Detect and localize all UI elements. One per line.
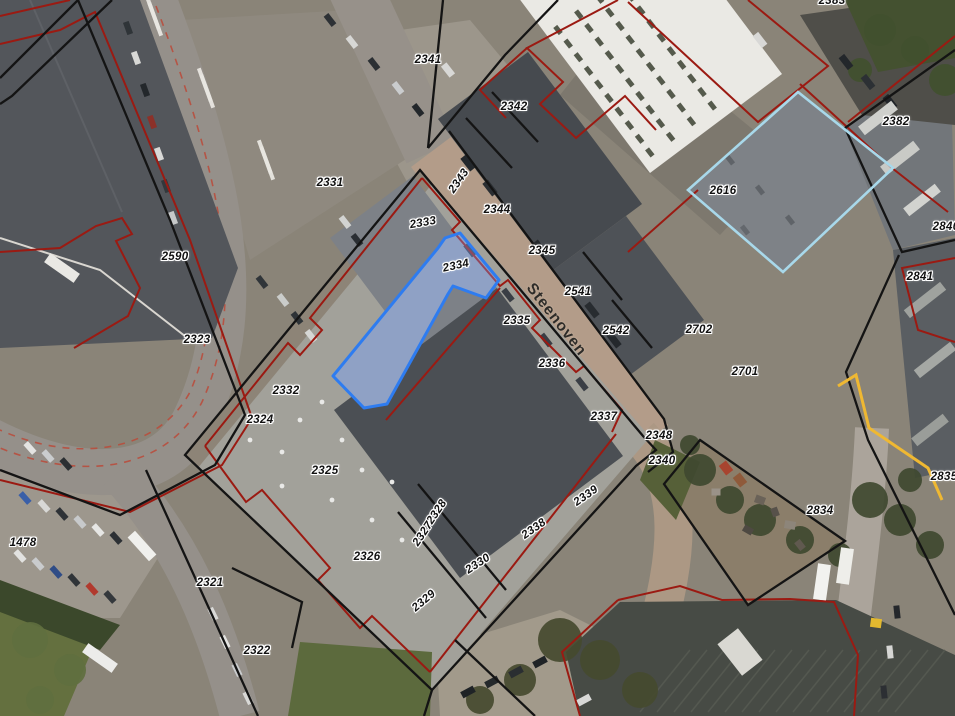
map-canvas[interactable]: 2341234223822331234326162344233328402345… [0, 0, 955, 716]
aerial-imagery [0, 0, 955, 716]
